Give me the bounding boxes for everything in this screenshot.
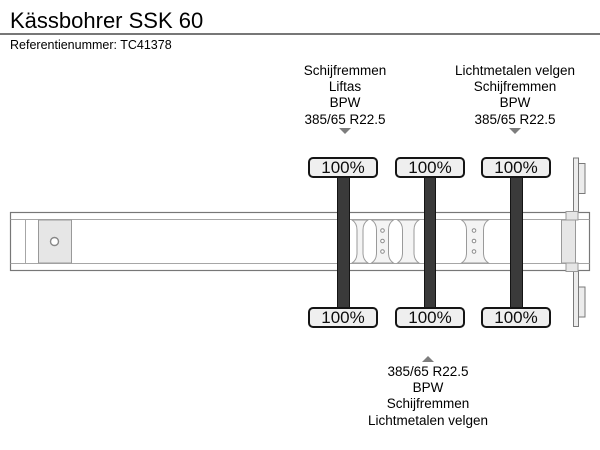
- axle-2-bottom-load-label: 100%: [395, 307, 465, 328]
- tire-bar-axle-1: [337, 170, 350, 316]
- axle-1-bottom-load-label: 100%: [308, 307, 378, 328]
- bracket-hole: [472, 239, 476, 243]
- bracket-hole: [472, 229, 476, 233]
- rear-lamp-bottom: [579, 287, 586, 317]
- tire-bar-axle-3: [510, 170, 523, 316]
- kingpin-icon: [51, 238, 59, 246]
- chassis-beam: [11, 213, 590, 271]
- rear-bracket-bottom: [566, 263, 578, 272]
- tire-bar-axle-2: [424, 170, 437, 316]
- rear-lamp-top: [579, 164, 586, 194]
- bracket-hole: [381, 250, 385, 254]
- axle-3-bottom-load-label: 100%: [481, 307, 551, 328]
- beam-end-cap: [562, 220, 576, 263]
- axle-1-top-load-label: 100%: [308, 157, 378, 178]
- rear-bracket-top: [566, 212, 578, 221]
- trailer-spec-page: Kässbohrer SSK 60 Referentienummer: TC41…: [0, 0, 600, 450]
- bracket-hole: [472, 250, 476, 254]
- bracket-hole: [381, 239, 385, 243]
- axle-2-top-load-label: 100%: [395, 157, 465, 178]
- axle-3-top-load-label: 100%: [481, 157, 551, 178]
- bracket-hole: [381, 229, 385, 233]
